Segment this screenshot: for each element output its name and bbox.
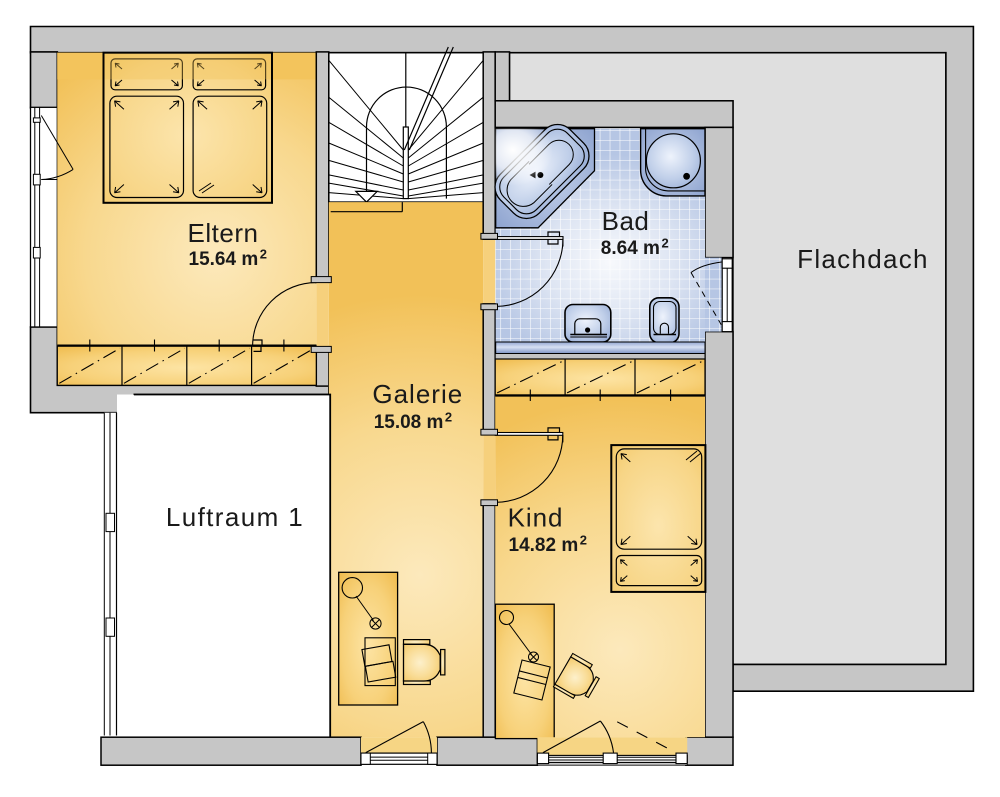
svg-text:Kind: Kind [508, 503, 564, 533]
svg-text:Bad: Bad [602, 206, 650, 236]
svg-text:Flachdach: Flachdach [797, 244, 929, 274]
svg-text:Luftraum 1: Luftraum 1 [166, 502, 304, 532]
svg-text:8.64 m2: 8.64 m2 [601, 236, 669, 260]
svg-text:Eltern: Eltern [188, 218, 259, 248]
svg-text:15.64 m2: 15.64 m2 [189, 247, 267, 271]
svg-text:15.08 m2: 15.08 m2 [374, 410, 452, 434]
svg-text:14.82 m2: 14.82 m2 [509, 533, 587, 557]
svg-text:Galerie: Galerie [372, 379, 463, 409]
